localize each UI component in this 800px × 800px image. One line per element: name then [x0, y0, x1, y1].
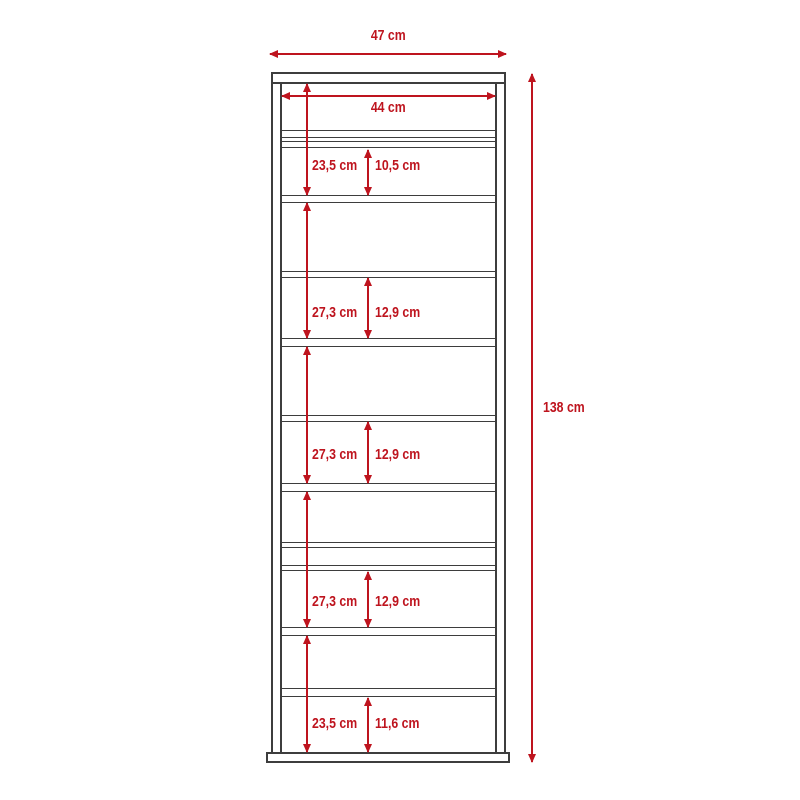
dim-arrow-section-5-sub: [367, 698, 369, 752]
shelf-line-6: [282, 565, 495, 571]
dim-arrow-inner-width: [282, 95, 495, 97]
dim-label-section-4-height: 27,3 cm: [312, 593, 367, 610]
dim-arrow-section-3-sub: [367, 422, 369, 483]
shelf-line-4: [282, 415, 495, 422]
shelf-line-2: [282, 141, 495, 148]
shelf-divider-4: [282, 627, 495, 636]
dim-arrow-section-1-height: [306, 84, 308, 195]
dim-label-inner-width: 44 cm: [330, 99, 446, 116]
dim-label-section-2-height: 27,3 cm: [312, 304, 367, 321]
shelf-divider-1: [282, 195, 495, 203]
dim-arrow-total-height: [531, 74, 533, 762]
shelf-divider-3: [282, 483, 495, 492]
dim-label-section-2-sub: 12,9 cm: [375, 304, 430, 321]
dim-arrow-section-4-height: [306, 492, 308, 627]
dim-arrow-section-4-sub: [367, 572, 369, 627]
dim-label-section-1-height: 23,5 cm: [312, 157, 367, 174]
dim-arrow-section-5-height: [306, 636, 308, 752]
shelf-line-1: [282, 130, 495, 138]
dim-arrow-outer-width: [270, 53, 506, 55]
shelf-line-5: [282, 542, 495, 548]
dim-arrow-section-3-height: [306, 347, 308, 483]
dim-label-outer-width: 47 cm: [330, 27, 446, 44]
dim-arrow-section-2-sub: [367, 278, 369, 338]
dim-label-section-3-height: 27,3 cm: [312, 446, 367, 463]
dim-arrow-section-1-sub: [367, 150, 369, 195]
dim-label-section-5-height: 23,5 cm: [312, 715, 367, 732]
furniture-dimension-diagram: 47 cm 44 cm 138 cm 23,5 cm 10,5 cm 27,3 …: [0, 0, 800, 800]
cabinet-base-plinth: [266, 752, 510, 763]
dim-label-section-5-sub: 11,6 cm: [375, 715, 429, 732]
shelf-line-3: [282, 271, 495, 278]
shelf-divider-2: [282, 338, 495, 347]
dim-arrow-section-2-height: [306, 203, 308, 338]
dim-label-section-1-sub: 10,5 cm: [375, 157, 430, 174]
shelf-line-7: [282, 688, 495, 697]
dim-label-total-height: 138 cm: [543, 399, 594, 416]
dim-label-section-4-sub: 12,9 cm: [375, 593, 430, 610]
dim-label-section-3-sub: 12,9 cm: [375, 446, 430, 463]
cabinet-right-inner-panel: [495, 84, 497, 752]
